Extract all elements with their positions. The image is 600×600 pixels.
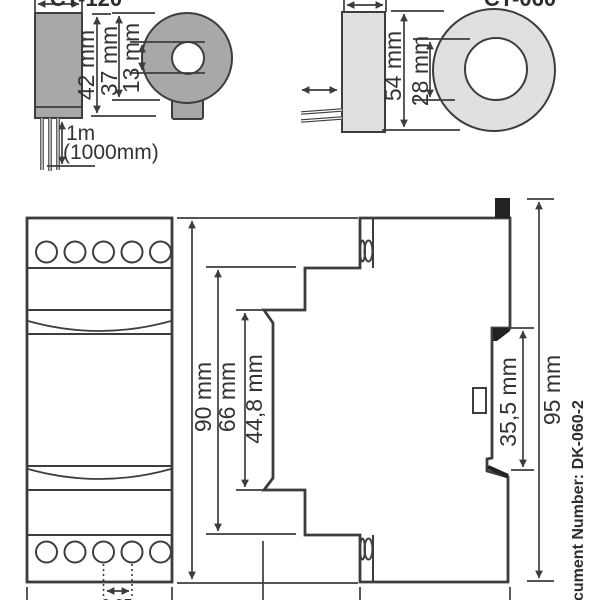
dim-44-8mm-text: 44,8 mm <box>241 354 267 443</box>
ct060-width-dimension <box>344 0 386 12</box>
ct120-wires <box>42 118 58 171</box>
ct120-cable-length-alt-text: (1000mm) <box>63 141 159 164</box>
ct060-side-view-body <box>342 12 385 132</box>
ct060-toroid-front-view <box>433 9 555 131</box>
technical-drawing-page: CT-120 42 mm 37 mm 13 mm 1m (1000mm) <box>0 0 600 600</box>
ct120-toroid-hole <box>172 42 204 74</box>
ct060-label: CT-060 <box>484 0 556 11</box>
dim-66mm-text: 66 mm <box>214 362 240 432</box>
ct120-toroid-front-view <box>142 13 232 119</box>
dim-90mm-text: 90 mm <box>190 362 216 432</box>
ct120-drawing: CT-120 42 mm 37 mm 13 mm 1m (1000mm) <box>35 0 232 171</box>
ct060-outer-diameter-text: 54 mm <box>380 31 406 101</box>
dim-35-5mm-text: 35,5 mm <box>495 357 521 446</box>
din-rail-top-hook <box>493 328 510 341</box>
module-front-outline <box>27 218 172 582</box>
document-number-text: cument Number: DK-060-2 <box>570 400 587 600</box>
ct060-toroid-hole <box>465 38 527 100</box>
ct120-hole-diameter-text: 13 mm <box>118 23 144 93</box>
ct060-drawing: CT-060 54 mm 28 mm <box>301 0 556 132</box>
ct060-wires <box>301 110 342 121</box>
dimension-drawing: CT-120 42 mm 37 mm 13 mm 1m (1000mm) <box>0 0 600 600</box>
module-side-view <box>263 198 510 600</box>
dim-95mm-text: 95 mm <box>539 355 565 425</box>
din-clip-top-tab <box>495 198 510 218</box>
module-front-view: 9,95 <box>27 218 172 600</box>
ct120-label: CT-120 <box>50 0 122 11</box>
ct060-hole-diameter-text: 28 mm <box>407 36 433 106</box>
